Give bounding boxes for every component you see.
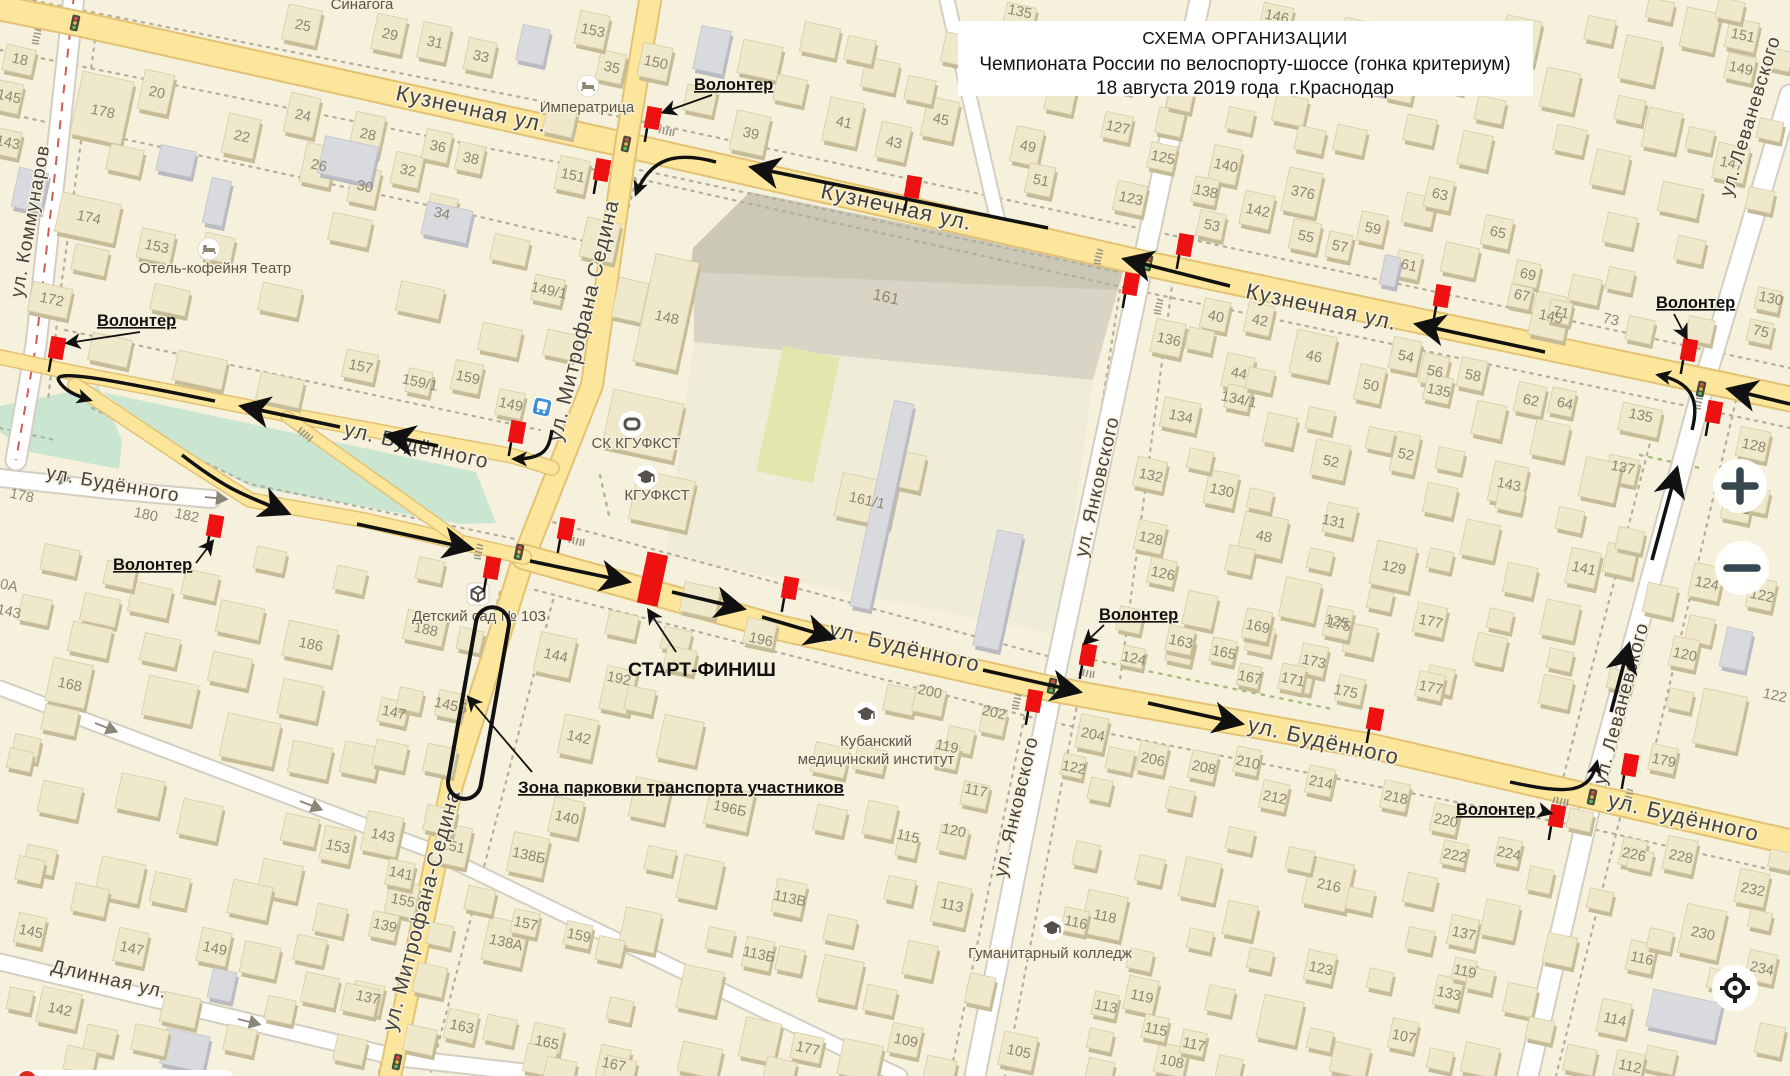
svg-text:41: 41	[834, 114, 853, 133]
svg-text:55: 55	[1296, 228, 1315, 247]
svg-text:Синагога: Синагога	[331, 0, 394, 13]
svg-text:67: 67	[1512, 287, 1531, 306]
svg-text:53: 53	[1202, 217, 1221, 236]
svg-text:22: 22	[232, 128, 251, 147]
svg-text:59: 59	[1363, 220, 1382, 239]
svg-text:33: 33	[471, 48, 490, 67]
svg-text:26: 26	[309, 157, 328, 176]
svg-text:СТАРТ-ФИНИШ: СТАРТ-ФИНИШ	[628, 659, 776, 681]
svg-text:18: 18	[10, 51, 29, 70]
svg-text:65: 65	[1488, 224, 1507, 243]
svg-text:24: 24	[293, 107, 312, 126]
svg-text:Волонтер: Волонтер	[694, 76, 773, 94]
svg-text:32: 32	[398, 162, 417, 181]
svg-text:40: 40	[1206, 308, 1225, 327]
svg-text:35: 35	[602, 59, 621, 78]
svg-text:КГУФКСТ: КГУФКСТ	[624, 487, 689, 504]
svg-text:Императрица: Императрица	[540, 99, 635, 116]
svg-text:Волонтер: Волонтер	[113, 556, 192, 574]
svg-text:54: 54	[1396, 348, 1415, 367]
svg-text:75: 75	[1751, 323, 1770, 342]
svg-text:38: 38	[461, 150, 480, 169]
svg-text:СХЕМА ОРГАНИЗАЦИИ: СХЕМА ОРГАНИЗАЦИИ	[1142, 28, 1347, 48]
svg-text:Чемпионата России по велоспорт: Чемпионата России по велоспорту-шоссе (г…	[979, 54, 1510, 75]
svg-text:45: 45	[931, 111, 950, 130]
svg-text:СК КГУФКСТ: СК КГУФКСТ	[591, 435, 680, 452]
svg-text:Волонтер: Волонтер	[1656, 294, 1735, 312]
svg-text:30: 30	[355, 178, 374, 197]
svg-text:48: 48	[1254, 528, 1273, 547]
svg-text:58: 58	[1463, 367, 1482, 386]
svg-text:18 августа 2019 года г.Красно: 18 августа 2019 года г.Краснодар	[1096, 78, 1394, 99]
svg-text:28: 28	[358, 126, 377, 145]
svg-text:29: 29	[380, 26, 399, 45]
svg-text:39: 39	[741, 125, 760, 144]
svg-text:43: 43	[884, 134, 903, 153]
svg-text:51: 51	[1031, 172, 1050, 191]
svg-text:медицинский институт: медицинский институт	[798, 751, 955, 768]
svg-text:Волонтер: Волонтер	[1099, 606, 1178, 624]
svg-text:44: 44	[1229, 365, 1248, 384]
svg-text:Отель-кофейня Театр: Отель-кофейня Театр	[139, 260, 291, 277]
svg-text:Волонтер: Волонтер	[97, 312, 176, 330]
svg-text:73: 73	[1601, 311, 1620, 330]
svg-text:56: 56	[1425, 363, 1444, 382]
svg-text:34: 34	[432, 205, 451, 224]
svg-text:25: 25	[293, 17, 312, 36]
svg-text:Кубанский: Кубанский	[840, 733, 912, 750]
svg-text:71: 71	[1551, 304, 1570, 323]
svg-text:46: 46	[1304, 348, 1323, 367]
svg-text:42: 42	[1250, 312, 1269, 331]
svg-text:69: 69	[1518, 266, 1537, 285]
svg-text:52: 52	[1396, 446, 1415, 465]
svg-text:57: 57	[1330, 238, 1349, 257]
svg-text:63: 63	[1430, 186, 1449, 205]
svg-text:20: 20	[147, 84, 166, 103]
svg-text:Волонтер: Волонтер	[1456, 801, 1535, 819]
svg-text:Зона парковки транспорта участ: Зона парковки транспорта участников	[518, 778, 844, 797]
svg-text:31: 31	[425, 34, 444, 53]
svg-text:49: 49	[1018, 138, 1037, 157]
svg-text:64: 64	[1555, 395, 1574, 414]
svg-text:62: 62	[1521, 392, 1540, 411]
svg-text:36: 36	[428, 138, 447, 157]
svg-text:61: 61	[1399, 257, 1418, 276]
svg-text:52: 52	[1321, 453, 1340, 472]
svg-text:Гуманитарный колледж: Гуманитарный колледж	[968, 945, 1132, 962]
svg-text:50: 50	[1361, 377, 1380, 396]
